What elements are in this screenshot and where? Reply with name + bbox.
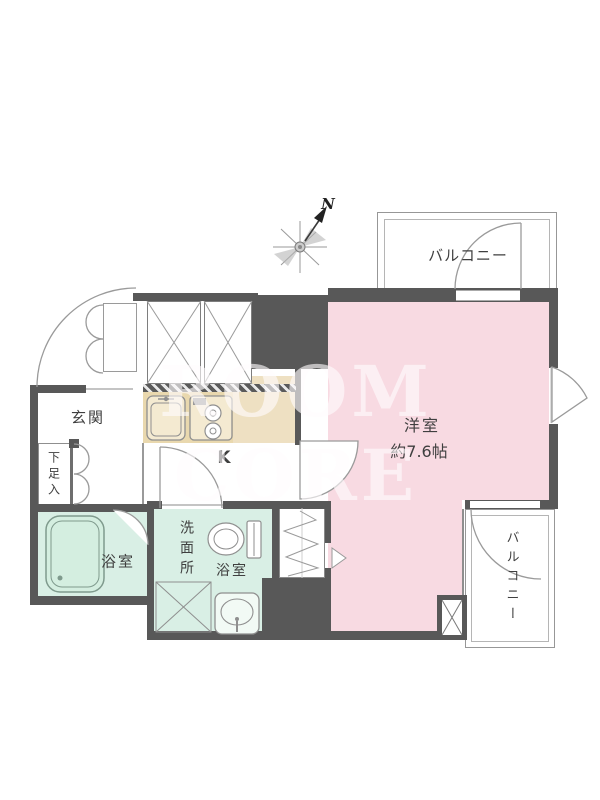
folding-door-icon: [284, 508, 318, 578]
toilet-icon: [208, 521, 261, 558]
main-room-label: 洋室: [404, 412, 440, 436]
main-room-size-label: 約7.6帖: [390, 438, 447, 462]
washroom-bath-label: 浴室: [216, 560, 248, 580]
compass-star-icon: [273, 206, 327, 273]
shoe-cabinet-door-arc-upper: [74, 444, 89, 474]
bathroom-label: 浴室: [101, 551, 135, 572]
pipe-space-x-icon: [442, 600, 462, 635]
right-wall-door-fan: [552, 367, 587, 422]
washroom-door-arc: [160, 447, 222, 508]
washroom-label: 洗面所: [176, 520, 196, 580]
balcony-bottom-label: バルコニー: [502, 531, 521, 626]
entrance-label: 玄関: [71, 407, 105, 428]
plan-symbols: [0, 0, 600, 800]
folding-door-swing-marker: [332, 548, 346, 568]
floor-plan: バルコニー 洋室 約7.6帖 玄関 下足入 K 浴室 洗面所 浴室 バルコニー …: [0, 0, 600, 800]
bathroom-door-arc: [113, 510, 148, 545]
wash-basin-icon: [215, 593, 259, 634]
entrance-door-arc: [37, 288, 136, 387]
door-swing-arcs: [37, 223, 587, 579]
stove-icon: [190, 396, 232, 440]
kitchen-label: K: [217, 448, 230, 468]
washer-space-icon: [156, 582, 211, 632]
alcove-door-arc-lower: [86, 339, 103, 373]
kitchen-mainroom-door-arc: [300, 441, 358, 499]
balcony-top-label: バルコニー: [428, 245, 508, 266]
bathtub-icon: [46, 516, 104, 592]
shoe-cabinet-label: 下足入: [46, 451, 63, 499]
alcove-door-arc-upper: [86, 305, 103, 339]
north-label: N: [321, 195, 335, 213]
kitchen-sink-icon: [147, 396, 185, 440]
closet-x-icon: [147, 301, 252, 384]
shoe-cabinet-door-arc-lower: [74, 474, 89, 504]
